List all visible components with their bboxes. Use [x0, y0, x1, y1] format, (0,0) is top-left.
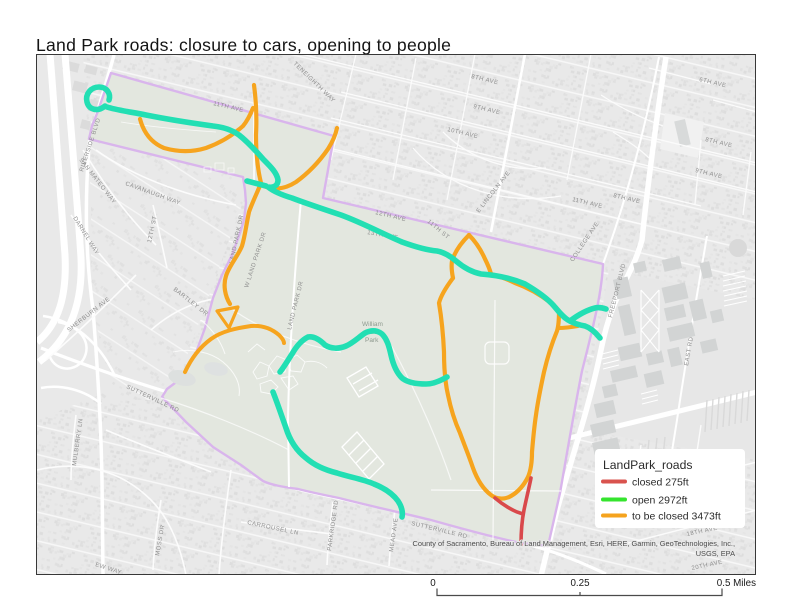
svg-text:County of Sacramento, Bureau o: County of Sacramento, Bureau of Land Man… [413, 539, 735, 548]
svg-text:William: William [362, 321, 383, 328]
svg-text:0: 0 [430, 578, 436, 589]
svg-text:Park: Park [365, 337, 379, 344]
svg-text:USGS, EPA: USGS, EPA [696, 549, 735, 558]
svg-text:to be closed 3473ft: to be closed 3473ft [632, 511, 721, 523]
svg-text:0.25: 0.25 [570, 578, 590, 589]
svg-text:LandPark_roads: LandPark_roads [603, 458, 692, 472]
svg-text:0.5 Miles: 0.5 Miles [717, 578, 756, 589]
svg-text:closed 275ft: closed 275ft [632, 477, 689, 489]
svg-text:open 2972ft: open 2972ft [632, 495, 688, 507]
